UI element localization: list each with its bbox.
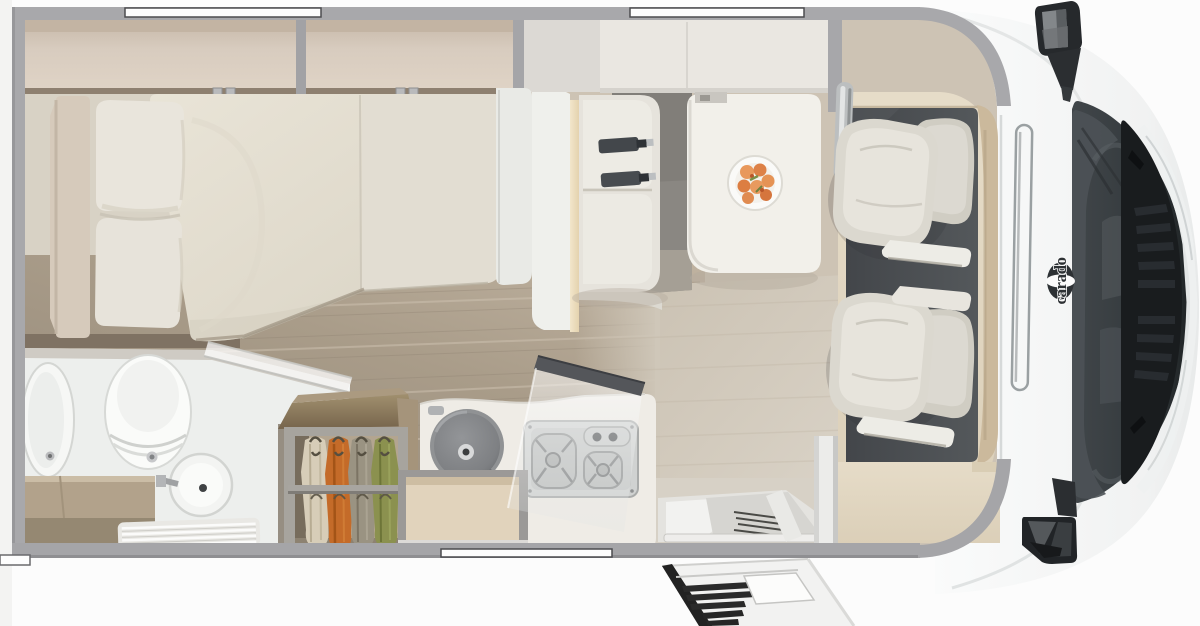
svg-text:carado: carado <box>1051 257 1070 304</box>
